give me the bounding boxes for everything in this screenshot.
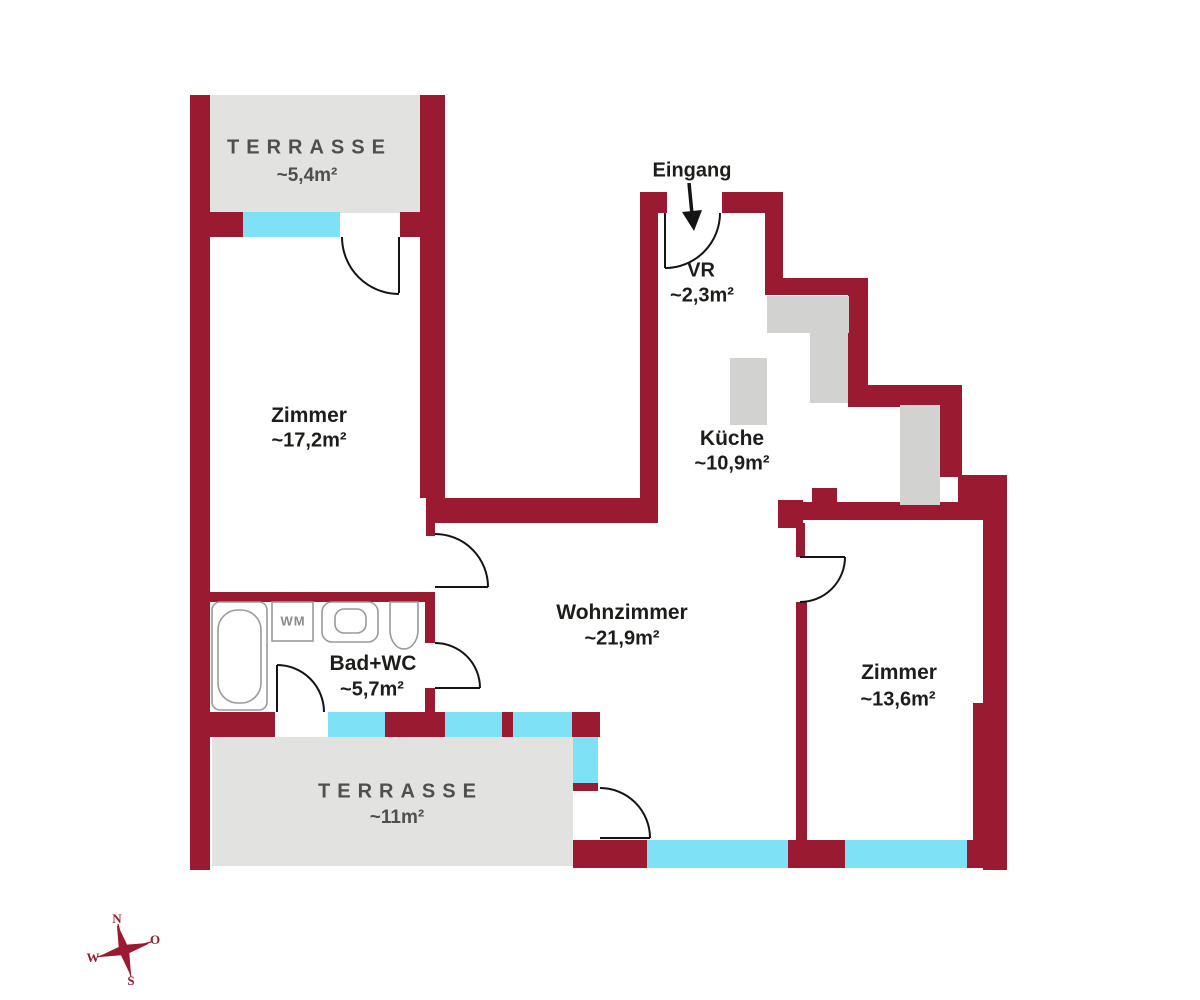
room-label-bad-wc-area: ~5,7m² (340, 679, 404, 702)
room-label-kueche-name: Küche (700, 427, 764, 451)
door-terrace-top (342, 237, 399, 294)
wall-segment (765, 278, 868, 295)
wall-segment (190, 712, 275, 737)
floorplan-geometry (0, 0, 1200, 1000)
room-label-vr-area: ~2,3m² (670, 285, 734, 308)
entrance-arrow-head (682, 210, 702, 231)
wall-segment (788, 840, 805, 868)
wall-segment (640, 192, 667, 213)
wall-segment (420, 95, 445, 498)
door-bad-wc (435, 643, 480, 688)
room-label-terrasse-top-name: TERRASSE (220, 137, 392, 160)
door-bad-terrace (277, 665, 324, 712)
wall-segment (573, 783, 598, 791)
terrace-areas (210, 95, 573, 866)
washing-machine-label: WM (280, 614, 305, 629)
kitchen-counter (900, 405, 940, 505)
compass-rose-icon (97, 924, 151, 977)
wall-segment (385, 712, 445, 737)
wall-segment (765, 212, 783, 278)
wall-segment (722, 192, 783, 213)
bathtub-inner (218, 610, 261, 703)
compass-star (100, 926, 148, 974)
door-zimmer-left (435, 534, 488, 587)
wall-segment (973, 703, 985, 840)
room-label-bad-wc-name: Bad+WC (330, 652, 417, 676)
wall-segment (983, 512, 1007, 870)
kitchen-counter (767, 296, 849, 333)
window (243, 212, 340, 237)
room-label-vr-name: VR (687, 260, 715, 283)
room-label-zimmer-left-name: Zimmer (271, 404, 347, 428)
entrance-arrow-icon (682, 183, 702, 231)
wall-segment (796, 523, 805, 557)
wall-segment (940, 407, 962, 477)
room-label-terrasse-bottom-area: ~11m² (370, 807, 424, 829)
wall-segment (812, 488, 837, 504)
wall-segment (190, 212, 243, 237)
wall-segment (848, 385, 962, 407)
compass-south-label: S (127, 973, 134, 989)
room-label-zimmer-right-name: Zimmer (861, 661, 937, 685)
door-zimmer-right (800, 557, 845, 602)
room-label-kueche-area: ~10,9m² (694, 453, 769, 476)
wall-segment (573, 840, 647, 868)
wall-segment (400, 212, 445, 237)
room-label-terrasse-bottom-name: TERRASSE (311, 781, 483, 804)
wall-segment (210, 592, 427, 602)
room-label-zimmer-left-area: ~17,2m² (271, 430, 346, 453)
sink-basin (335, 609, 366, 633)
window (647, 840, 788, 868)
wall-segment (640, 193, 658, 520)
window (328, 712, 385, 737)
wall-segment (425, 688, 435, 712)
wall-segment (572, 712, 600, 737)
room-label-wohnzimmer-area: ~21,9m² (584, 628, 659, 651)
wall-segment (190, 95, 210, 870)
window (573, 737, 598, 783)
window (445, 712, 502, 737)
kitchen-counter (730, 358, 767, 425)
wall-segment (967, 840, 1007, 868)
wall-segment (848, 295, 868, 387)
compass-east-label: O (150, 932, 160, 948)
window (513, 712, 572, 737)
room-label-wohnzimmer-name: Wohnzimmer (556, 601, 687, 625)
wall-segment (502, 712, 513, 737)
wall-segment (805, 840, 845, 868)
room-label-zimmer-right-area: ~13,6m² (860, 689, 935, 712)
wall-segment (426, 498, 435, 536)
room-label-terrasse-top-area: ~5,4m² (277, 165, 338, 187)
entrance-label: Eingang (653, 160, 732, 183)
compass-north-label: N (112, 911, 121, 927)
window (845, 840, 967, 868)
toilet (390, 602, 418, 649)
wall-segment (427, 498, 658, 523)
door-terrace-bottom (600, 788, 650, 838)
wall-segment (425, 592, 435, 643)
compass-west-label: W (87, 950, 100, 966)
kitchen-counter (810, 333, 848, 403)
entrance-arrow-shaft (689, 183, 692, 214)
wall-segment (796, 602, 807, 840)
floorplan: TERRASSE ~5,4m² Zimmer ~17,2m² Eingang V… (0, 0, 1200, 1000)
